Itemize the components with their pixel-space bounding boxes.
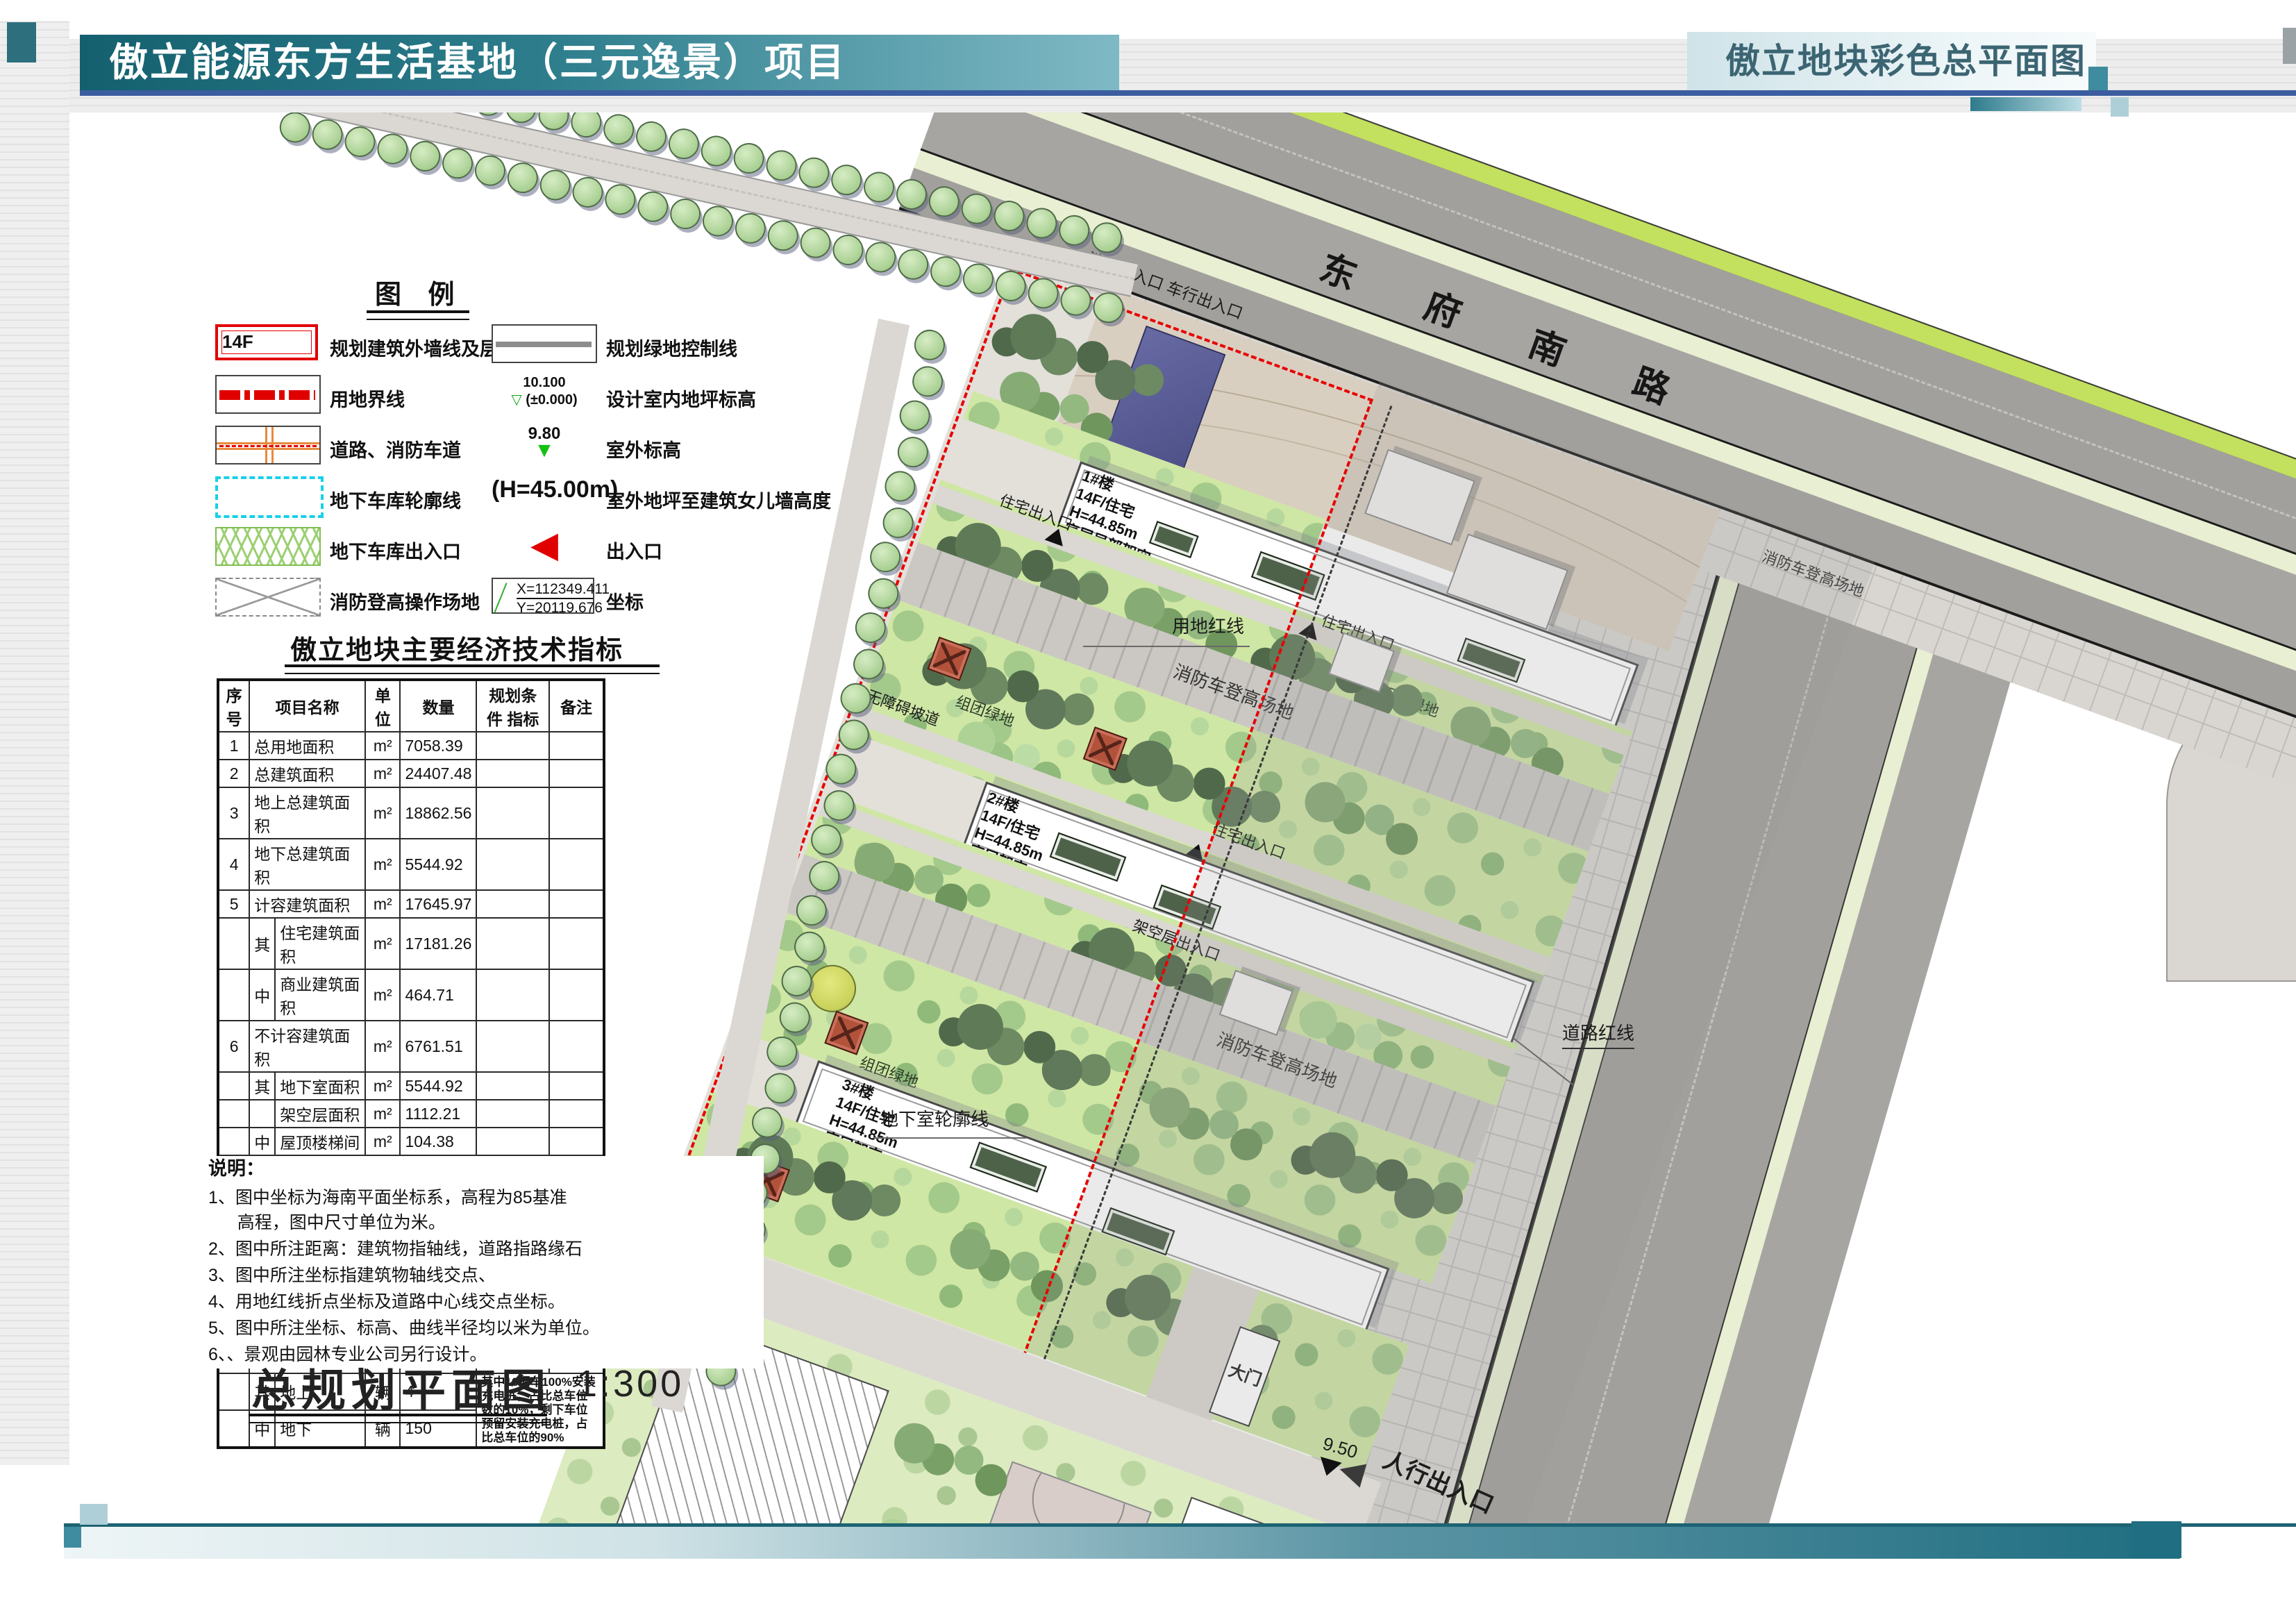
table-cell: 2 [218, 760, 249, 787]
street-tree [880, 505, 916, 541]
legend-outdoor-level-symbol: 9.80▼ [492, 426, 597, 464]
legend-title: 图 例 [375, 273, 464, 311]
street-tree [991, 198, 1027, 234]
table-row: 6不计容建筑面积m²6761.51 [218, 1021, 604, 1072]
table-cell: 地下室面积 [275, 1072, 365, 1100]
street-tree [828, 162, 864, 198]
street-tree [472, 153, 508, 189]
table-cell: 17181.26 [400, 918, 476, 969]
table-cell: 住宅建筑面积 [275, 918, 365, 969]
legend-item: ◀出入口 [492, 527, 769, 569]
street-tree [309, 117, 345, 153]
legend-building-symbol: 14F [215, 324, 321, 363]
street-tree [862, 239, 898, 275]
table-row: 中商业建筑面积m²464.71 [218, 969, 604, 1021]
table-cell: 计容建筑面积 [249, 890, 365, 918]
table-row: 3地上总建筑面积m²18862.56 [218, 787, 604, 839]
legend-road-symbol [215, 426, 321, 464]
table-cell [476, 760, 549, 787]
sheet-title: 傲立能源东方生活基地（三元逸景）项目 [109, 40, 846, 84]
table-cell: 4 [218, 839, 249, 890]
table-cell: m² [365, 787, 400, 839]
note-item: 2、图中所注距离：建筑物指轴线，道路指路缘石 [208, 1237, 764, 1262]
table-header: 备注 [549, 680, 604, 732]
street-tree [993, 268, 1029, 304]
street-tree [861, 169, 897, 205]
legend-item-label: 消防登高操作场地 [330, 587, 480, 614]
table-cell: 18862.56 [400, 787, 476, 839]
legend-item-label: 室外标高 [606, 435, 681, 462]
header-rule [80, 90, 2296, 96]
table-cell [249, 1100, 275, 1128]
accent-square [2111, 97, 2129, 117]
drawing-sheet: 东府南路 消防出入口 车行出入口 消防车登高场地 [0, 0, 2296, 1624]
note-item: 1、图中坐标为海南平面坐标系，高程为85基准 高程，图中尺寸单位为米。 [208, 1185, 764, 1235]
street-tree [808, 821, 844, 857]
legend-item: 道路、消防车道 [215, 426, 493, 467]
table-cell: 24407.48 [400, 760, 476, 787]
table-cell [218, 1072, 249, 1100]
street-tree [928, 253, 964, 290]
table-header: 单位 [365, 680, 400, 732]
street-tree [601, 111, 637, 147]
street-tree [277, 109, 313, 145]
note-item: 4、用地红线折点坐标及道路中心线交点坐标。 [208, 1289, 764, 1314]
table-cell: 总用地面积 [249, 732, 365, 760]
table-cell: m² [365, 1021, 400, 1072]
accent-square [2088, 67, 2108, 90]
table-cell [549, 732, 604, 760]
street-tree [895, 434, 931, 470]
table-row: 5计容建筑面积m²17645.97 [218, 890, 604, 918]
table-cell [476, 890, 549, 918]
street-tree [958, 190, 994, 226]
street-tree [960, 260, 996, 296]
table-cell: m² [365, 969, 400, 1021]
table-cell: 17645.97 [400, 890, 476, 918]
street-tree [912, 327, 948, 363]
legend-item: 用地界线 [215, 375, 493, 417]
table-cell: 5 [218, 890, 249, 918]
legend-item-label: 道路、消防车道 [330, 435, 461, 462]
street-tree [779, 963, 815, 999]
legend-garage-outline-symbol [215, 476, 321, 515]
street-tree [897, 398, 933, 434]
legend-entrance-symbol: ◀ [492, 527, 597, 566]
table-header: 规划条件 指标 [476, 680, 549, 732]
table-cell [549, 918, 604, 969]
table-cell [218, 918, 249, 969]
table-cell [218, 1128, 249, 1155]
table-cell [549, 760, 604, 787]
street-tree [439, 145, 476, 181]
table-cell: 1112.21 [400, 1100, 476, 1128]
street-tree [374, 131, 410, 167]
table-cell: m² [365, 1128, 400, 1155]
table-title: 傲立地块主要经济技术指标 [290, 628, 623, 667]
plan-scale: 1:300 [576, 1362, 684, 1405]
legend-coordinate-symbol: X=112349.411Y=20119.676 [492, 578, 597, 617]
table-cell [218, 1373, 249, 1410]
table-cell [476, 732, 549, 760]
street-tree [505, 160, 541, 196]
legend-item: 规划绿地控制线 [492, 324, 769, 366]
table-cell [476, 969, 549, 1021]
table-cell: 464.71 [400, 969, 476, 1021]
table-cell [476, 1128, 549, 1155]
table-cell: 架空层面积 [275, 1100, 365, 1128]
table-cell: m² [365, 890, 400, 918]
table-cell [218, 969, 249, 1021]
street-tree [791, 929, 828, 965]
table-cell: 不计容建筑面积 [249, 1021, 365, 1072]
street-tree [796, 155, 832, 191]
legend-item-label: 地下车库轮廓线 [330, 486, 461, 513]
table-cell [476, 1021, 549, 1072]
legend-height-symbol: (H=45.00m) [492, 476, 597, 515]
street-tree [894, 176, 930, 212]
street-tree [537, 167, 573, 203]
street-tree [850, 646, 887, 683]
legend-item-label: 出入口 [606, 537, 662, 564]
table-cell: m² [365, 918, 400, 969]
note-item: 3、图中所注坐标指建筑物轴线交点、 [208, 1263, 764, 1288]
table-cell: 其 [249, 1072, 275, 1100]
table-cell [218, 1410, 249, 1448]
table-cell [476, 787, 549, 839]
table-row: 4地下总建筑面积m²5544.92 [218, 839, 604, 890]
table-row: 架空层面积m²1112.21 [218, 1100, 604, 1128]
table-cell: m² [365, 839, 400, 890]
table-cell: 5544.92 [400, 839, 476, 890]
table-cell: 104.38 [400, 1128, 476, 1155]
road-redline-label: 道路红线 [1562, 1019, 1634, 1049]
legend-title-underline [367, 310, 469, 320]
land-redline-leader [1083, 646, 1250, 647]
table-cell: 总建筑面积 [249, 760, 365, 787]
sheet-subtitle: 傲立地块彩色总平面图 [1725, 42, 2086, 81]
street-tree [698, 133, 735, 169]
legend-item-label: 规划建筑外墙线及层数 [330, 334, 517, 361]
table-cell: m² [365, 1072, 400, 1100]
street-tree [602, 181, 638, 217]
footer-accent-square [80, 1504, 108, 1525]
street-tree [749, 1105, 785, 1141]
street-tree [867, 539, 903, 575]
table-cell: 6761.51 [400, 1021, 476, 1072]
legend-greenline-symbol [492, 324, 597, 363]
table-cell: 1 [218, 732, 249, 760]
table-cell [476, 918, 549, 969]
table-cell: 地上总建筑面积 [249, 787, 365, 839]
table-header: 项目名称 [249, 680, 365, 732]
table-cell [476, 839, 549, 890]
table-cell: 中 [249, 969, 275, 1021]
table-cell [549, 1072, 604, 1100]
notes-title: 说明： [208, 1156, 764, 1181]
street-tree [1056, 212, 1092, 249]
street-tree [666, 126, 702, 162]
table-cell: 其 [249, 918, 275, 969]
table-cell: 7058.39 [400, 732, 476, 760]
table-row: 1总用地面积m²7058.39 [218, 732, 604, 760]
sheet-subtitle-panel: 傲立地块彩色总平面图 [1687, 32, 2096, 90]
street-tree [853, 610, 889, 646]
street-tree [838, 680, 874, 717]
street-tree [635, 188, 671, 224]
table-cell [549, 890, 604, 918]
table-cell [549, 969, 604, 1021]
legend-item: 9.80▼室外标高 [492, 426, 769, 467]
street-tree [1090, 290, 1126, 326]
street-tree [882, 468, 918, 504]
table-cell: 商业建筑面积 [275, 969, 365, 1021]
sheet-title-bar: 傲立能源东方生活基地（三元逸景）项目 [80, 35, 1119, 90]
street-tree [821, 787, 857, 823]
left-margin-stripes [0, 21, 69, 1465]
street-tree [1025, 275, 1061, 311]
street-tree [633, 119, 669, 155]
legend-item: 地下车库出入口 [215, 527, 493, 569]
street-tree [910, 363, 946, 399]
notes-panel: 说明： 1、图中坐标为海南平面坐标系，高程为85基准 高程，图中尺寸单位为米。2… [208, 1156, 764, 1368]
basement-outline-leader [873, 1137, 1026, 1139]
table-row: 中屋顶楼梯间m²104.38 [218, 1128, 604, 1155]
street-tree [407, 138, 443, 174]
legend-item-label: 规划绿地控制线 [606, 334, 737, 361]
table-cell: m² [365, 732, 400, 760]
street-tree [764, 217, 801, 253]
legend-panel: 图 例 14F规划建筑外墙线及层数用地界线道路、消防车道地下车库轮廓线地下车库出… [215, 267, 771, 614]
table-header: 序号 [218, 680, 249, 732]
street-tree [700, 203, 736, 239]
table-cell: 3 [218, 787, 249, 839]
footer-accent-square [64, 1527, 81, 1548]
footer-band [64, 1527, 2180, 1559]
table-cell: 地下总建筑面积 [249, 839, 365, 890]
legend-item: X=112349.411Y=20119.676坐标 [492, 578, 769, 619]
table-cell: m² [365, 1100, 400, 1128]
street-tree [777, 1000, 813, 1036]
table-cell [549, 839, 604, 890]
table-cell [218, 1100, 249, 1128]
table-cell: 5544.92 [400, 1072, 476, 1100]
legend-item: 地下车库轮廓线 [215, 476, 493, 518]
legend-item: 10.100▽ (±0.000)设计室内地坪标高 [492, 375, 769, 417]
footer-accent-square [2131, 1521, 2181, 1558]
street-tree [569, 174, 605, 210]
street-tree [1057, 283, 1093, 319]
street-tree [836, 717, 872, 753]
table-cell: 6 [218, 1021, 249, 1072]
street-tree [830, 232, 866, 268]
street-tree [762, 1070, 798, 1106]
street-tree [865, 576, 901, 612]
table-title-underline [285, 664, 660, 674]
legend-item-label: 设计室内地坪标高 [606, 385, 756, 412]
table-row: 其地下室面积m²5544.92 [218, 1072, 604, 1100]
legend-floor-level-symbol: 10.100▽ (±0.000) [492, 375, 597, 414]
table-header: 数量 [400, 680, 476, 732]
legend-item-label: 用地界线 [330, 385, 405, 412]
street-tree [730, 140, 766, 176]
notes-list: 1、图中坐标为海南平面坐标系，高程为85基准 高程，图中尺寸单位为米。2、图中所… [208, 1185, 764, 1367]
street-tree [823, 751, 859, 787]
street-tree [926, 183, 962, 219]
table-cell: 屋顶楼梯间 [275, 1128, 365, 1155]
street-tree [667, 196, 703, 232]
plan-name: 总规划平面图 [251, 1355, 551, 1419]
land-redline-label: 用地红线 [1172, 612, 1244, 638]
header-teal-strip [1970, 97, 2081, 111]
street-tree [895, 246, 931, 283]
legend-fire-area-symbol [215, 578, 321, 617]
street-tree [797, 224, 833, 260]
table-cell [549, 1021, 604, 1072]
table-cell: m² [365, 760, 400, 787]
basement-outline-label: 地下室轮廓线 [880, 1105, 989, 1131]
street-tree [806, 858, 842, 894]
legend-item: (H=45.00m)室外地坪至建筑女儿墙高度 [492, 476, 769, 518]
accent-square [2283, 28, 2296, 64]
legend-item-label: 坐标 [606, 587, 644, 614]
legend-item: 14F规划建筑外墙线及层数 [215, 324, 493, 366]
street-tree [732, 210, 769, 246]
table-row: 其住宅建筑面积m²17181.26 [218, 918, 604, 969]
street-tree [764, 1034, 800, 1070]
legend-item-label: 地下车库出入口 [330, 537, 461, 564]
street-tree [1089, 219, 1125, 256]
legend-item: 消防登高操作场地 [215, 578, 493, 619]
table-cell [549, 787, 604, 839]
street-tree [794, 892, 830, 928]
street-tree [763, 147, 799, 183]
corner-accent-square [7, 22, 36, 62]
table-cell: 中 [249, 1128, 275, 1155]
table-cell [476, 1072, 549, 1100]
legend-garage-ramp-symbol [215, 527, 321, 566]
note-item: 5、图中所注坐标、标高、曲线半径均以米为单位。 [208, 1316, 764, 1341]
table-cell [476, 1100, 549, 1128]
legend-item-label: 室外地坪至建筑女儿墙高度 [606, 486, 831, 513]
table-cell [549, 1128, 604, 1155]
table-cell [549, 1100, 604, 1128]
table-row: 2总建筑面积m²24407.48 [218, 760, 604, 787]
legend-boundary-symbol [215, 375, 321, 414]
street-tree [342, 124, 378, 160]
street-tree [1023, 205, 1059, 241]
plan-name-underline [249, 1414, 547, 1423]
